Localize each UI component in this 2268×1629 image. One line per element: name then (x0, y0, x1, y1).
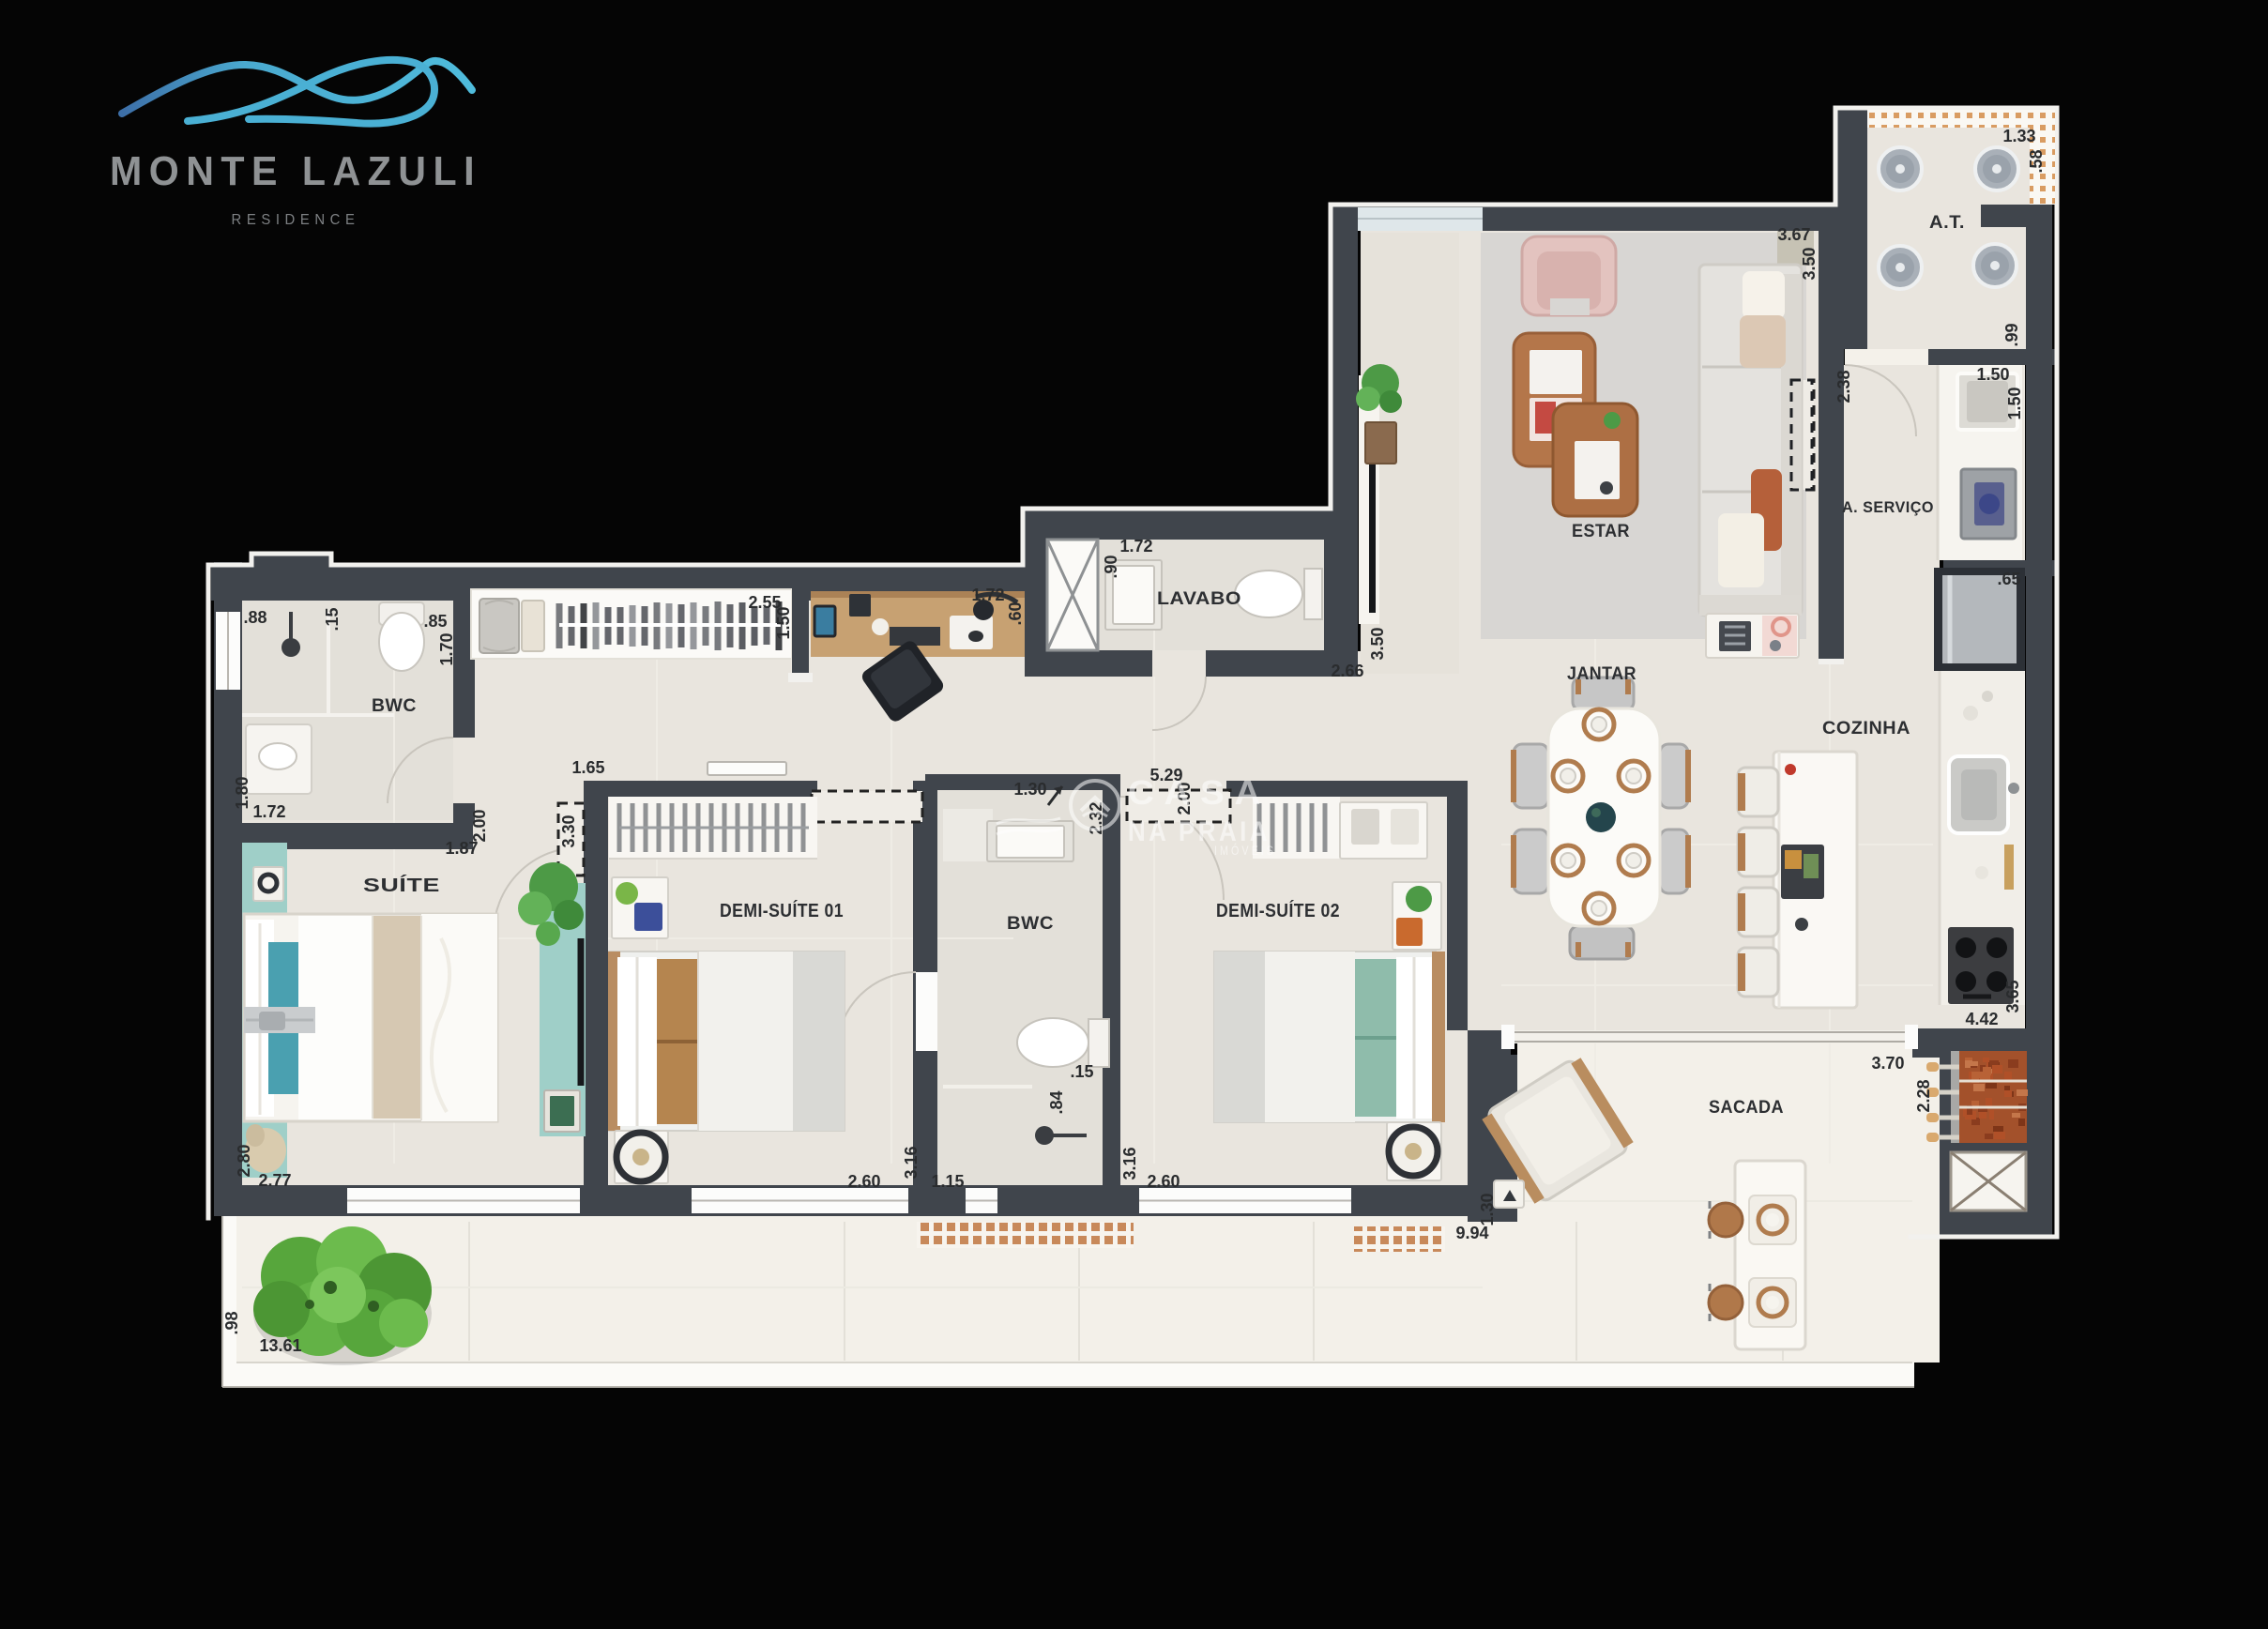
svg-text:3.70: 3.70 (1871, 1054, 1904, 1073)
svg-text:1.72: 1.72 (252, 802, 285, 821)
svg-text:IMÓVEIS: IMÓVEIS (1214, 843, 1276, 858)
svg-text:JANTAR: JANTAR (1567, 664, 1636, 684)
svg-text:3.16: 3.16 (902, 1146, 921, 1179)
svg-text:13.61: 13.61 (259, 1336, 301, 1355)
svg-text:.85: .85 (423, 612, 447, 631)
svg-text:2.80: 2.80 (235, 1144, 253, 1177)
svg-text:2.77: 2.77 (258, 1171, 291, 1190)
svg-text:RESIDENCE: RESIDENCE (232, 212, 360, 228)
svg-text:.60: .60 (1006, 601, 1025, 625)
svg-text:3.67: 3.67 (1777, 225, 1810, 244)
svg-text:LAVABO: LAVABO (1157, 589, 1241, 609)
svg-text:.90: .90 (1102, 555, 1120, 578)
svg-text:3.30: 3.30 (559, 814, 578, 847)
svg-text:3.50: 3.50 (1368, 627, 1387, 660)
svg-text:.65: .65 (1997, 570, 2020, 588)
svg-text:1.50: 1.50 (2005, 387, 2024, 419)
svg-text:COZINHA: COZINHA (1822, 719, 1910, 738)
svg-text:1.30: 1.30 (1013, 780, 1046, 799)
svg-text:3.65: 3.65 (2003, 980, 2022, 1012)
svg-text:MONTE LAZULI: MONTE LAZULI (110, 148, 481, 194)
svg-text:2.28: 2.28 (1914, 1079, 1933, 1112)
svg-text:1.50: 1.50 (1976, 365, 2009, 384)
svg-text:2.00: 2.00 (470, 809, 489, 842)
svg-text:2.60: 2.60 (1147, 1172, 1180, 1191)
svg-text:1.80: 1.80 (233, 776, 251, 809)
svg-text:1.72: 1.72 (1119, 537, 1152, 556)
svg-text:1.50: 1.50 (774, 606, 793, 639)
svg-text:3.16: 3.16 (1120, 1147, 1139, 1180)
svg-text:DEMI-SUÍTE 01: DEMI-SUÍTE 01 (720, 900, 844, 921)
svg-text:2.60: 2.60 (847, 1172, 880, 1191)
svg-text:.15: .15 (1070, 1062, 1093, 1081)
svg-text:ESTAR: ESTAR (1572, 522, 1630, 541)
svg-text:4.42: 4.42 (1965, 1010, 1998, 1028)
svg-text:3.50: 3.50 (1800, 247, 1819, 280)
svg-text:.98: .98 (222, 1311, 241, 1334)
svg-text:1.70: 1.70 (437, 632, 456, 665)
svg-text:A. SERVIÇO: A. SERVIÇO (1842, 498, 1934, 516)
svg-text:1.33: 1.33 (2002, 127, 2035, 145)
svg-text:.58: .58 (2027, 149, 2046, 173)
svg-text:A.T.: A.T. (1929, 213, 1965, 233)
svg-text:.88: .88 (243, 608, 266, 627)
svg-text:SUÍTE: SUÍTE (363, 875, 440, 896)
svg-text:1.65: 1.65 (571, 758, 604, 777)
svg-text:.99: .99 (2002, 323, 2021, 346)
svg-text:.84: .84 (1047, 1090, 1066, 1114)
svg-text:1.30: 1.30 (1478, 1193, 1497, 1226)
svg-text:2.66: 2.66 (1331, 662, 1363, 680)
svg-text:SACADA: SACADA (1709, 1098, 1784, 1118)
svg-text:2.38: 2.38 (1834, 370, 1853, 403)
svg-text:DEMI-SUÍTE 02: DEMI-SUÍTE 02 (1216, 900, 1340, 921)
svg-text:CASA: CASA (1128, 773, 1271, 812)
svg-text:BWC: BWC (1007, 914, 1054, 934)
svg-text:.15: .15 (323, 607, 342, 631)
svg-text:1.15: 1.15 (931, 1172, 964, 1191)
svg-text:1.72: 1.72 (971, 586, 1004, 604)
svg-text:BWC: BWC (372, 696, 417, 716)
